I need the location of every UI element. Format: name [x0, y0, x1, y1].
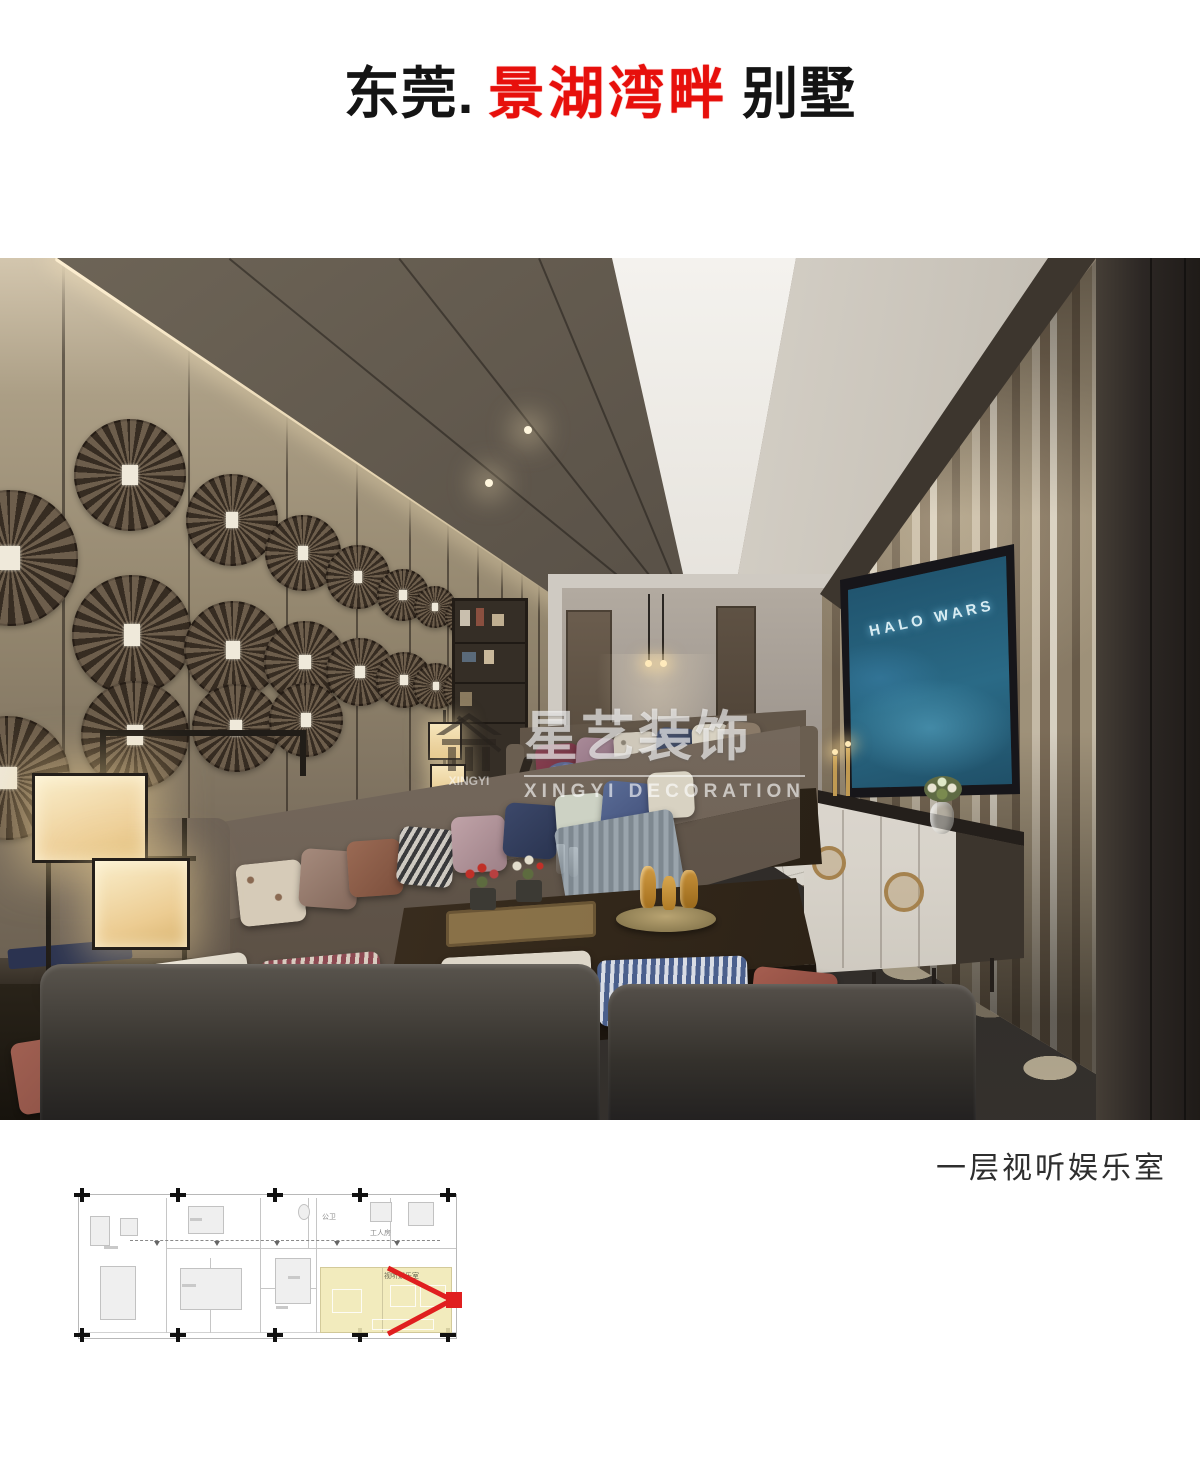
shelf-object	[476, 608, 484, 626]
title-type: 别墅	[742, 62, 856, 125]
title-city: 东莞.	[344, 62, 475, 125]
right-wall-seam	[1184, 258, 1186, 1120]
cabinet-leg	[990, 958, 994, 992]
medallion-disc	[269, 683, 343, 757]
watermark-divider	[524, 775, 805, 777]
watermark: XINGYI 星艺装饰 XINGYI DECORATION	[428, 692, 805, 803]
table-lamp-arm	[100, 730, 306, 736]
table-lamp-shade-lower	[92, 858, 190, 950]
flower-pot	[470, 888, 496, 910]
flower-pot	[516, 880, 542, 902]
pillow	[502, 802, 560, 860]
shelf-object	[492, 614, 504, 626]
cabinet-door-seam	[842, 810, 844, 968]
ceiling-spotlight	[524, 426, 532, 434]
presentation-page: 东莞.景湖湾畔别墅	[0, 0, 1200, 1474]
tulip-flowers	[462, 862, 502, 890]
watermark-text-block: 星艺装饰 XINGYI DECORATION	[524, 692, 805, 803]
shelf-object	[460, 610, 470, 626]
title-project-name: 景湖湾畔	[488, 62, 728, 125]
wine-glass	[569, 847, 578, 877]
watermark-brand-cn: 星艺装饰	[524, 692, 805, 771]
right-wall-seam	[1150, 258, 1152, 1120]
decanter	[680, 870, 698, 908]
plan-view-marker	[70, 1188, 462, 1350]
xingyi-logo-icon: XINGYI	[428, 705, 510, 791]
candlestick	[833, 756, 837, 796]
pillow	[346, 838, 404, 898]
flower-vase	[930, 802, 954, 834]
ceiling-spotlight	[485, 479, 493, 487]
cabinet-door-seam	[880, 816, 882, 968]
medallion-disc	[192, 684, 280, 772]
shelf-line	[455, 642, 525, 644]
pendant-rod	[648, 594, 650, 660]
candle-flame	[832, 749, 838, 755]
candlestick	[846, 748, 850, 796]
shelf-object	[462, 652, 476, 662]
interior-rendering-photo: HALO WARS	[0, 258, 1200, 1120]
svg-text:XINGYI: XINGYI	[449, 774, 490, 788]
table-lamp-arm	[300, 730, 306, 776]
wine-glass	[556, 844, 565, 874]
medallion-disc	[72, 575, 192, 695]
foreground-sofa-left	[40, 964, 600, 1120]
pillow	[235, 859, 307, 928]
watermark-brand-en: XINGYI DECORATION	[524, 781, 805, 803]
page-title: 东莞.景湖湾畔别墅	[0, 62, 1200, 126]
foreground-sofa-right	[608, 984, 976, 1120]
decanter	[662, 876, 676, 910]
shelf-object	[484, 650, 494, 664]
decanter	[640, 866, 656, 908]
photo-caption: 一层视听娱乐室	[936, 1143, 1167, 1187]
shelf-line	[455, 682, 525, 684]
candle-flame	[845, 741, 851, 747]
pendant-rod	[662, 594, 664, 660]
table-lamp-shade-upper	[32, 773, 148, 863]
white-flowers	[508, 854, 550, 882]
flower-cluster	[924, 776, 962, 802]
floor-plan: 公卫 工人房 视听娱乐室	[70, 1188, 462, 1350]
pillow	[396, 826, 457, 889]
cabinet-handle	[884, 872, 924, 912]
medallion-disc	[74, 419, 186, 531]
